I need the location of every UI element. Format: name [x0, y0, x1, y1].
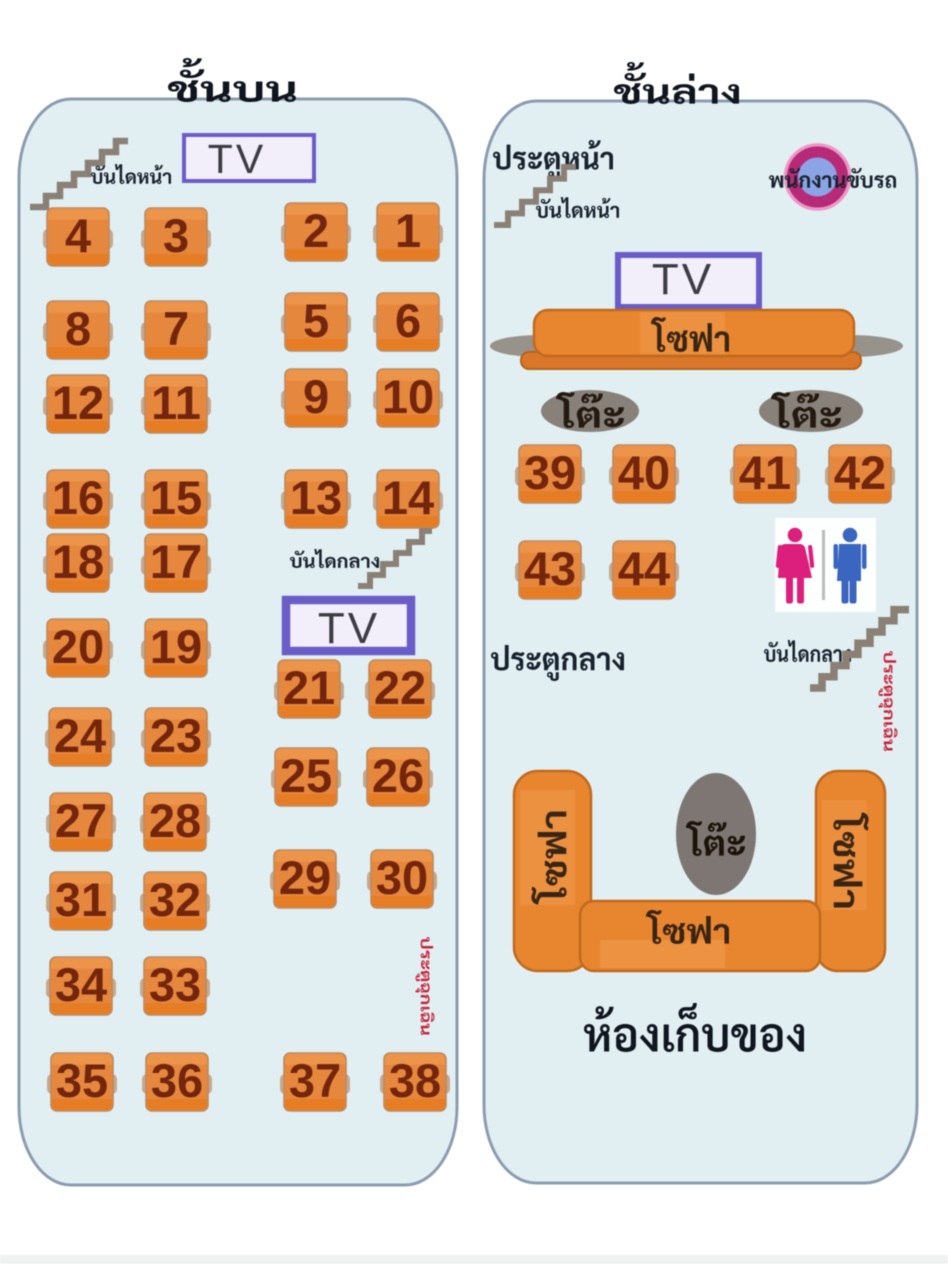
svg-text:8: 8 — [65, 302, 91, 355]
svg-text:40: 40 — [618, 446, 670, 499]
svg-text:39: 39 — [524, 446, 576, 499]
svg-text:5: 5 — [303, 294, 329, 347]
svg-text:1: 1 — [395, 204, 421, 257]
svg-text:3: 3 — [163, 209, 189, 262]
svg-text:TV: TV — [208, 136, 266, 182]
svg-text:13: 13 — [290, 471, 342, 524]
svg-text:38: 38 — [389, 1054, 441, 1107]
svg-text:11: 11 — [151, 376, 201, 429]
svg-text:33: 33 — [149, 958, 201, 1011]
svg-text:21: 21 — [283, 661, 335, 714]
svg-text:20: 20 — [52, 620, 104, 673]
svg-text:22: 22 — [374, 661, 426, 714]
svg-text:41: 41 — [739, 446, 791, 499]
svg-text:42: 42 — [834, 446, 886, 499]
svg-text:35: 35 — [56, 1054, 108, 1107]
svg-text:34: 34 — [55, 958, 107, 1011]
svg-text:29: 29 — [279, 851, 331, 904]
svg-text:18: 18 — [52, 535, 104, 588]
svg-text:24: 24 — [54, 709, 106, 762]
svg-text:2: 2 — [303, 204, 329, 257]
svg-text:4: 4 — [65, 209, 91, 262]
svg-text:12: 12 — [52, 376, 104, 429]
svg-text:28: 28 — [149, 794, 201, 847]
svg-text:23: 23 — [150, 709, 202, 762]
svg-text:9: 9 — [303, 370, 329, 423]
svg-text:43: 43 — [524, 542, 576, 595]
svg-text:32: 32 — [149, 873, 201, 926]
svg-text:17: 17 — [150, 535, 202, 588]
svg-text:27: 27 — [55, 794, 107, 847]
svg-text:10: 10 — [382, 370, 434, 423]
svg-text:19: 19 — [150, 620, 202, 673]
svg-text:31: 31 — [55, 873, 107, 926]
svg-text:44: 44 — [618, 542, 670, 595]
svg-text:TV: TV — [652, 255, 714, 304]
svg-text:14: 14 — [382, 471, 434, 524]
svg-text:26: 26 — [372, 749, 424, 802]
svg-text:7: 7 — [163, 302, 189, 355]
svg-text:16: 16 — [52, 471, 104, 524]
svg-text:15: 15 — [150, 471, 202, 524]
svg-text:36: 36 — [151, 1054, 203, 1107]
svg-text:30: 30 — [376, 851, 428, 904]
svg-text:37: 37 — [289, 1054, 341, 1107]
svg-text:25: 25 — [280, 749, 332, 802]
svg-text:TV: TV — [318, 604, 380, 653]
svg-text:6: 6 — [395, 294, 421, 347]
